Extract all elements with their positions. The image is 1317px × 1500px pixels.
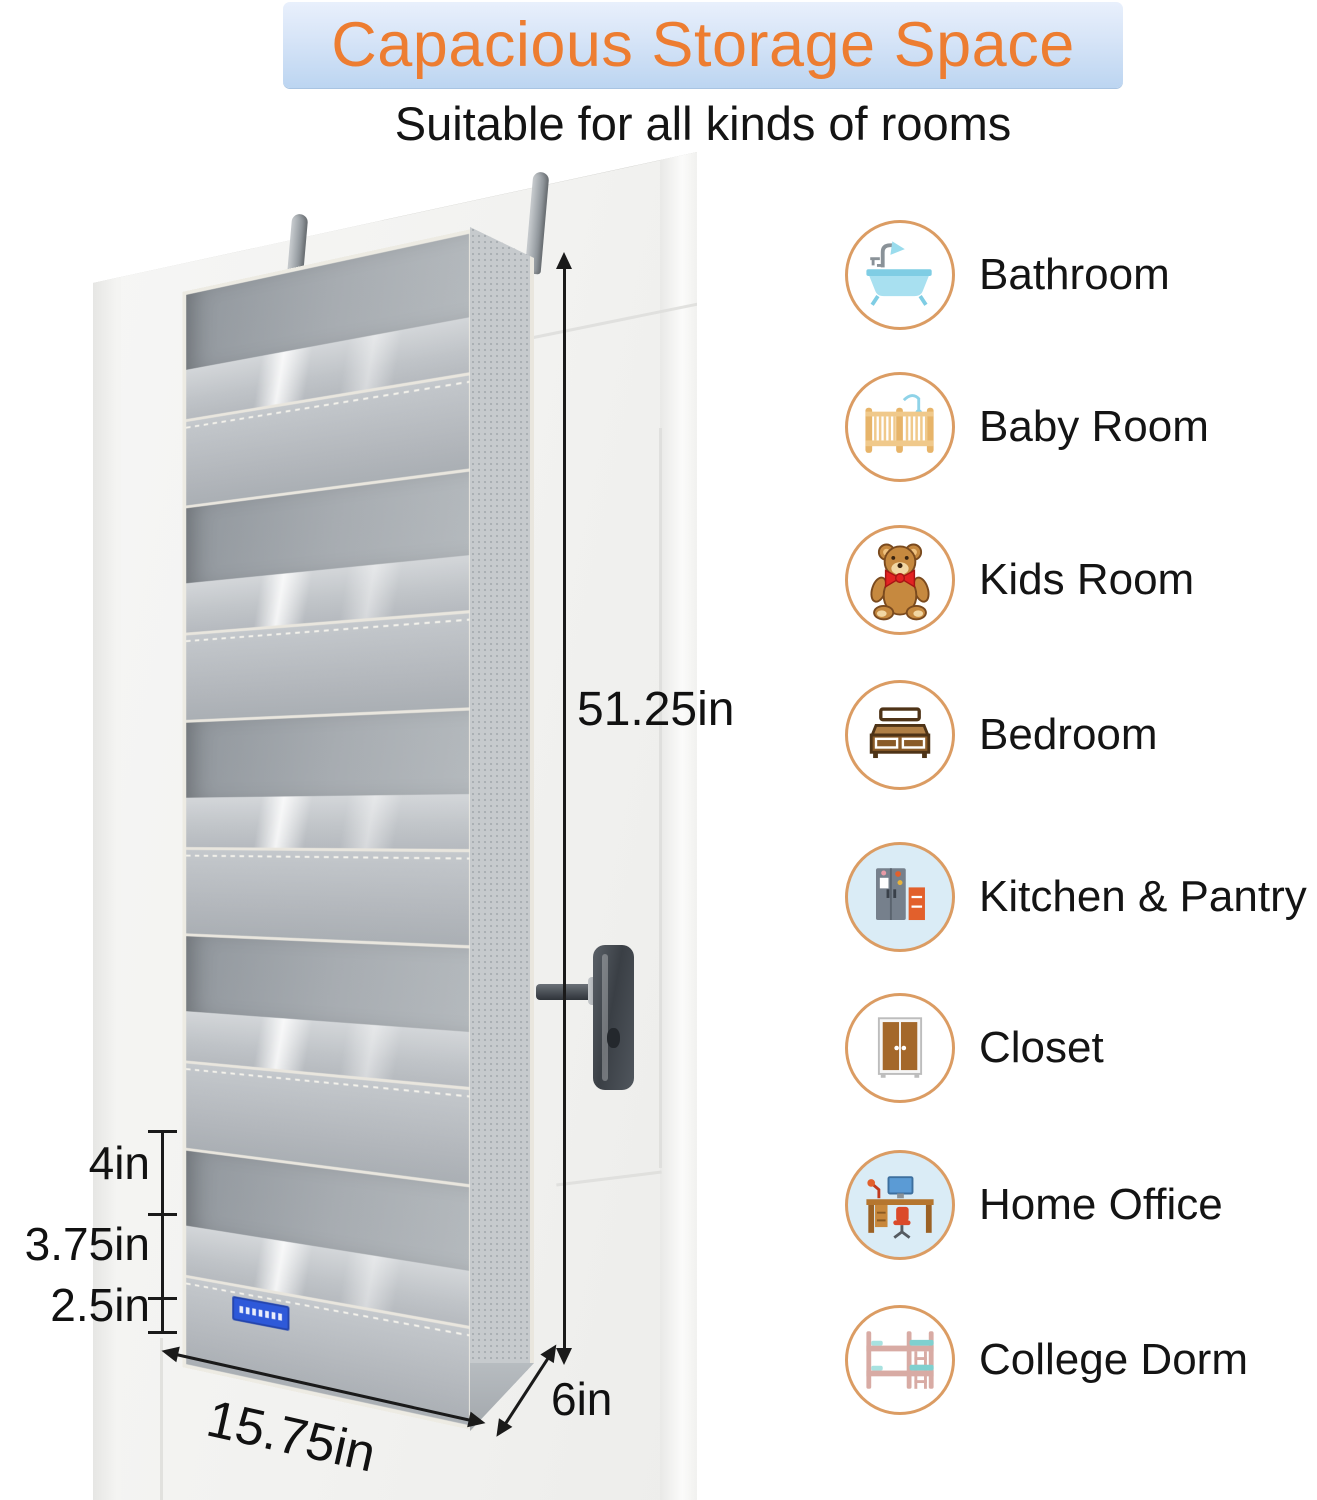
organizer-pocket-3 bbox=[186, 850, 469, 949]
door-handle-highlight bbox=[602, 954, 608, 1081]
room-item-bathroom: Bathroom bbox=[845, 218, 1170, 332]
bunk-bed-icon bbox=[845, 1305, 955, 1415]
room-label: Closet bbox=[979, 1023, 1104, 1073]
wardrobe-icon bbox=[845, 993, 955, 1103]
room-label: Home Office bbox=[979, 1180, 1223, 1230]
height-dimension-line bbox=[563, 267, 566, 1350]
depth-dimension-label: 6in bbox=[551, 1372, 612, 1426]
keyhole bbox=[607, 1028, 620, 1048]
pocket-depth-label-middle: 3.75in bbox=[0, 1217, 150, 1271]
pocket-depth-bracket bbox=[161, 1130, 164, 1333]
organizer-mesh-side bbox=[470, 227, 534, 1431]
door-handle-plate bbox=[593, 945, 634, 1090]
room-label: Kitchen & Pantry bbox=[979, 872, 1307, 922]
room-item-baby-room: Baby Room bbox=[845, 370, 1209, 484]
arrow-right-icon bbox=[467, 1412, 487, 1431]
room-label: Baby Room bbox=[979, 402, 1209, 452]
crib-icon bbox=[845, 372, 955, 482]
fridge-icon bbox=[845, 842, 955, 952]
room-label: Bedroom bbox=[979, 710, 1158, 760]
room-item-bedroom: Bedroom bbox=[845, 678, 1158, 792]
height-dimension-label: 51.25in bbox=[577, 682, 734, 737]
desk-icon bbox=[845, 1150, 955, 1260]
brand-tag bbox=[232, 1295, 289, 1330]
subtitle: Suitable for all kinds of rooms bbox=[283, 96, 1123, 151]
arrow-up-icon bbox=[556, 252, 572, 269]
room-item-kitchen-pantry: Kitchen & Pantry bbox=[845, 840, 1307, 954]
room-label: College Dorm bbox=[979, 1335, 1248, 1385]
pocket-depth-label-top: 4in bbox=[0, 1136, 150, 1190]
bracket-tick bbox=[148, 1331, 177, 1334]
door-panel-molding bbox=[659, 428, 662, 1168]
product-infographic: Capacious Storage Space Suitable for all… bbox=[0, 0, 1317, 1500]
room-item-closet: Closet bbox=[845, 991, 1104, 1105]
bracket-tick bbox=[148, 1297, 177, 1300]
organizer-front-panel bbox=[183, 229, 474, 1431]
room-item-home-office: Home Office bbox=[845, 1148, 1223, 1262]
door-right-edge bbox=[660, 140, 697, 1500]
page-title: Capacious Storage Space bbox=[331, 9, 1074, 81]
bathtub-icon bbox=[845, 220, 955, 330]
door-panel-molding bbox=[556, 1171, 662, 1187]
pocket-depth-label-bottom: 2.5in bbox=[0, 1278, 150, 1332]
organizer-shelf-3 bbox=[186, 710, 469, 852]
room-label: Bathroom bbox=[979, 250, 1170, 300]
bracket-tick bbox=[148, 1213, 177, 1216]
arrow-left-icon bbox=[160, 1343, 180, 1362]
room-label: Kids Room bbox=[979, 555, 1194, 605]
teddy-bear-icon bbox=[845, 525, 955, 635]
title-banner: Capacious Storage Space bbox=[283, 2, 1123, 88]
room-item-college-dorm: College Dorm bbox=[845, 1303, 1248, 1417]
door-panel-molding bbox=[160, 1338, 163, 1500]
bracket-tick bbox=[148, 1130, 177, 1133]
room-item-kids-room: Kids Room bbox=[845, 523, 1194, 637]
bed-icon bbox=[845, 680, 955, 790]
